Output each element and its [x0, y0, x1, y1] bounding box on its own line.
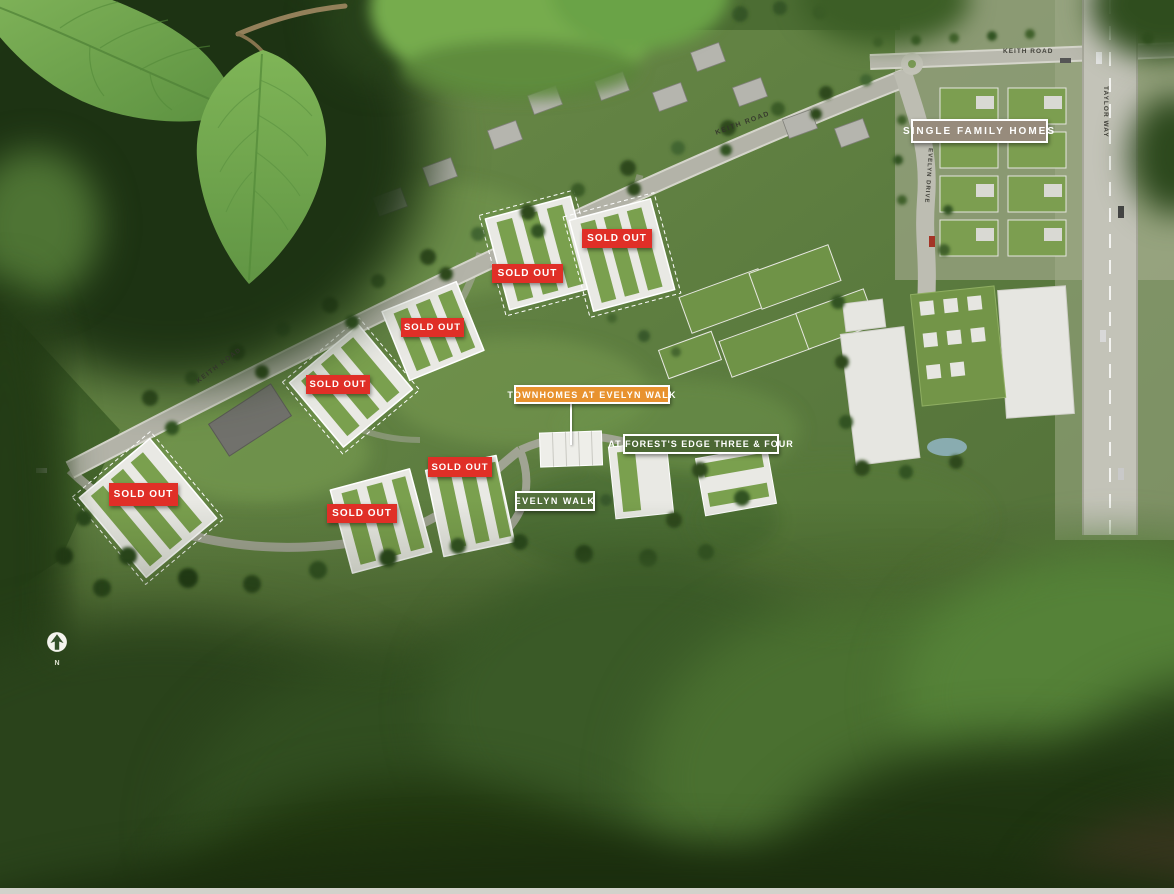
sold-out-badge: SOLD OUT — [109, 483, 178, 506]
sold-out-badge: SOLD OUT — [327, 504, 397, 523]
sold-out-badge: SOLD OUT — [401, 318, 464, 337]
leader-line — [570, 403, 572, 445]
road-label-keith-road-top: KEITH ROAD — [1003, 48, 1053, 55]
sold-out-badge: SOLD OUT — [582, 229, 652, 248]
site-plan-page: KEITH ROAD KEITH ROAD KEITH ROAD TAYLOR … — [0, 0, 1174, 894]
north-arrow-icon — [46, 631, 68, 653]
road-label-taylor-way: TAYLOR WAY — [1102, 86, 1109, 138]
forests-edge-badge[interactable]: AT FOREST'S EDGE THREE & FOUR — [623, 434, 779, 454]
road-label-keith-road-upper: KEITH ROAD — [715, 110, 771, 136]
single-family-homes-badge[interactable]: SINGLE FAMILY HOMES — [911, 119, 1048, 143]
sold-out-badge: SOLD OUT — [306, 375, 370, 394]
sold-out-badge: SOLD OUT — [428, 457, 492, 477]
townhomes-at-evelyn-walk-badge[interactable]: TOWNHOMES AT EVELYN WALK — [514, 385, 670, 404]
road-label-evelyn-drive: EVELYN DRIVE — [923, 148, 933, 204]
road-label-keith-road-lower: KEITH ROAD — [195, 346, 243, 384]
compass: N — [40, 631, 74, 667]
sold-out-badge: SOLD OUT — [492, 264, 563, 283]
evelyn-walk-badge[interactable]: EVELYN WALK — [515, 491, 595, 511]
bottom-edge-strip — [0, 888, 1174, 894]
north-label: N — [40, 660, 74, 667]
